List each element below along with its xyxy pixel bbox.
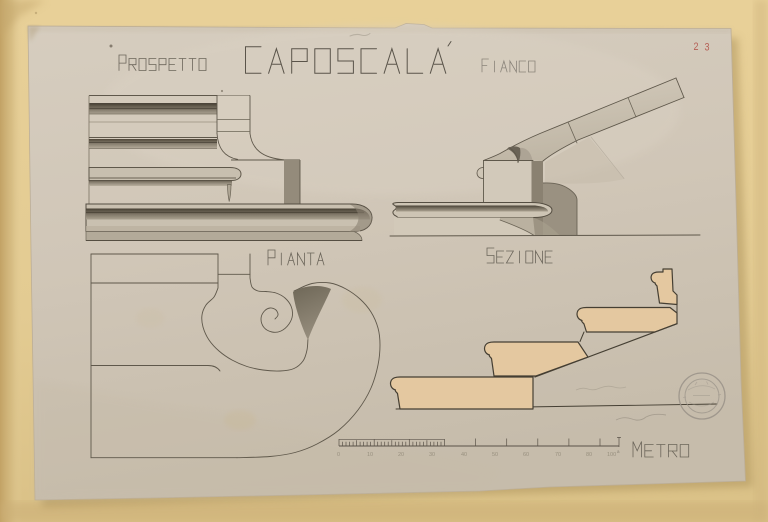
svg-text:80: 80	[586, 452, 592, 458]
svg-text:3: 3	[705, 42, 710, 54]
svg-text:30: 30	[429, 452, 435, 458]
svg-text:50: 50	[492, 452, 498, 458]
svg-text:10: 10	[367, 452, 373, 458]
svg-text:60: 60	[523, 452, 529, 458]
svg-text:2: 2	[694, 41, 699, 53]
svg-text:20: 20	[398, 452, 404, 458]
svg-text:100: 100	[607, 452, 616, 458]
svg-text:0: 0	[337, 452, 340, 458]
svg-text:40: 40	[461, 452, 467, 458]
svg-text:70: 70	[555, 452, 561, 458]
